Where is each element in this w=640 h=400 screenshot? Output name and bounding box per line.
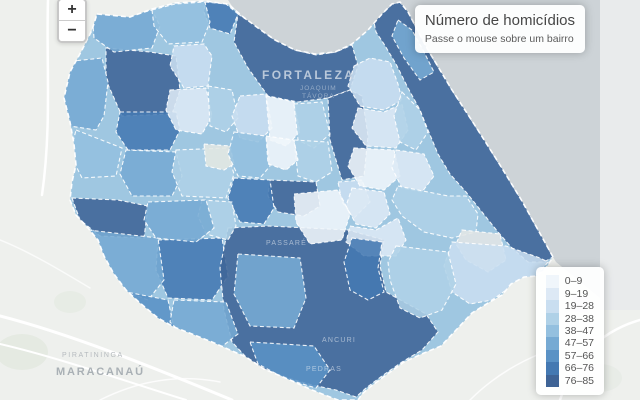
legend-swatch [546, 337, 559, 349]
legend-label: 76–85 [559, 375, 594, 387]
legend-swatch [546, 288, 559, 300]
legend-swatch [546, 313, 559, 325]
legend-swatch [546, 350, 559, 362]
legend: 0–99–1919–2828–3838–4747–5757–6666–7676–… [536, 267, 604, 395]
legend-label: 28–38 [559, 313, 594, 325]
basemap-label: PIRATININGA [62, 352, 124, 359]
legend-row: 66–76 [546, 362, 594, 374]
basemap-label: MARACANAÚ [56, 365, 145, 378]
legend-row: 47–57 [546, 337, 594, 349]
zoom-in-button[interactable]: + [59, 0, 85, 20]
legend-label: 47–57 [559, 337, 594, 349]
basemap-label: ANCURI [322, 337, 356, 344]
basemap-label: JOAQUIM [300, 85, 337, 92]
basemap-label: PEDRAS [306, 366, 342, 373]
legend-swatch [546, 362, 559, 374]
legend-swatch [546, 275, 559, 287]
bairro-region[interactable] [156, 238, 228, 300]
info-box: Número de homicídios Passe o mouse sobre… [415, 5, 585, 53]
legend-row: 0–9 [546, 275, 594, 287]
legend-swatch [546, 375, 559, 387]
legend-row: 28–38 [546, 313, 594, 325]
legend-swatch [546, 325, 559, 337]
basemap-label: PASSARÉ [266, 238, 307, 247]
zoom-out-button[interactable]: − [59, 20, 85, 41]
legend-label: 66–76 [559, 362, 594, 374]
legend-swatch [546, 300, 559, 312]
legend-label: 0–9 [559, 275, 583, 287]
legend-label: 38–47 [559, 325, 594, 337]
legend-row: 9–19 [546, 288, 594, 300]
basemap-label: FORTALEZA [262, 68, 355, 82]
zoom-control: + − [57, 0, 87, 43]
legend-label: 19–28 [559, 300, 594, 312]
legend-row: 76–85 [546, 375, 594, 387]
legend-row: 19–28 [546, 300, 594, 312]
map-subtitle: Passe o mouse sobre um bairro [425, 33, 575, 45]
legend-label: 9–19 [559, 288, 588, 300]
legend-label: 57–66 [559, 350, 594, 362]
map-title: Número de homicídios [425, 12, 575, 29]
legend-row: 38–47 [546, 325, 594, 337]
bairro-region[interactable] [144, 200, 214, 242]
legend-row: 57–66 [546, 350, 594, 362]
tile-gap [600, 0, 640, 310]
basemap-label: TÁVORA [302, 91, 335, 100]
